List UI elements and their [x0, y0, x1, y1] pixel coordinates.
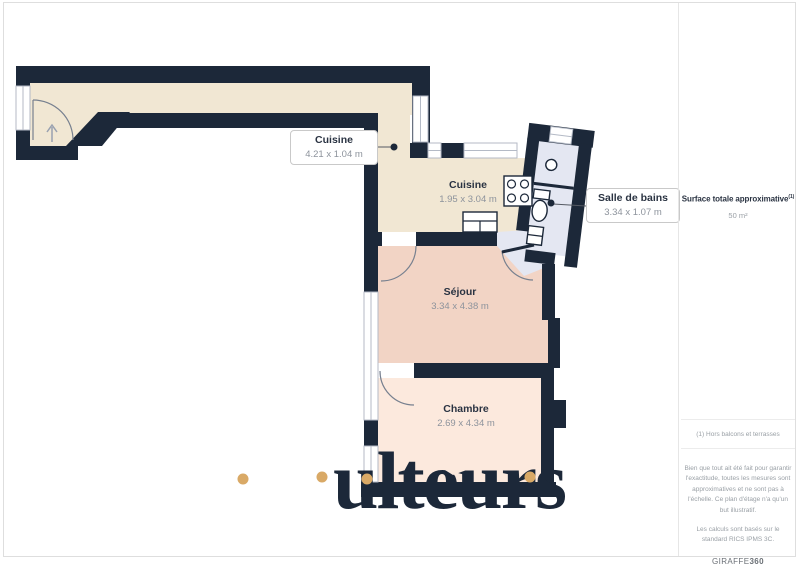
bathroom-dims: 3.34 x 1.07 m [594, 207, 672, 219]
kitchen-name: Cuisine [403, 179, 533, 193]
footnote: (1) Hors balcons et terrasses [681, 419, 795, 449]
chambre-dims: 2.69 x 4.34 m [401, 418, 531, 430]
surface-total-label: Surface totale approximative(1) [679, 194, 797, 204]
sejour-label: Séjour 3.34 x 4.38 m [395, 286, 525, 313]
corridor-dims: 4.21 x 1.04 m [298, 149, 370, 161]
washbasin-icon [545, 159, 557, 171]
gold-dot [525, 472, 536, 483]
toilet-tank-icon [533, 189, 550, 200]
chambre-name: Chambre [401, 403, 531, 417]
disclaimer-text: Bien que tout ait été fait pour garantir… [684, 464, 792, 516]
summary-sidebar: Surface totale approximative(1) 50 m² (1… [679, 2, 797, 557]
surface-footnote-marker: (1) [788, 194, 794, 200]
gold-dot [238, 474, 249, 485]
bathroom-label: Salle de bains 3.34 x 1.07 m [586, 188, 680, 223]
sejour-name: Séjour [395, 286, 525, 300]
surface-total-block: Surface totale approximative(1) 50 m² [679, 194, 797, 220]
kitchen-label: Cuisine 1.95 x 3.04 m [403, 179, 533, 206]
bathroom-leader-dot [548, 200, 555, 207]
kitchen-dims: 1.95 x 3.04 m [403, 194, 533, 206]
legal-block: Bien que tout ait été fait pour garantir… [684, 464, 792, 564]
corridor-label: Cuisine 4.21 x 1.04 m [290, 130, 378, 165]
corridor-name: Cuisine [298, 134, 370, 148]
gold-dot [317, 472, 328, 483]
bathroom-name: Salle de bains [594, 192, 672, 206]
surface-total-value: 50 m² [679, 211, 797, 220]
standard-text: Les calculs sont basés sur le standard R… [684, 525, 792, 546]
sejour-dims: 3.34 x 4.38 m [395, 301, 525, 313]
floorplan-page: ulteurs Cuisine 4.21 x 1.04 m Cuisine 1.… [0, 0, 800, 564]
giraffe360-logo: GIRAFFE360 [684, 557, 792, 564]
chambre-label: Chambre 2.69 x 4.34 m [401, 403, 531, 430]
gold-dot [362, 474, 373, 485]
corridor-leader-dot [391, 144, 398, 151]
